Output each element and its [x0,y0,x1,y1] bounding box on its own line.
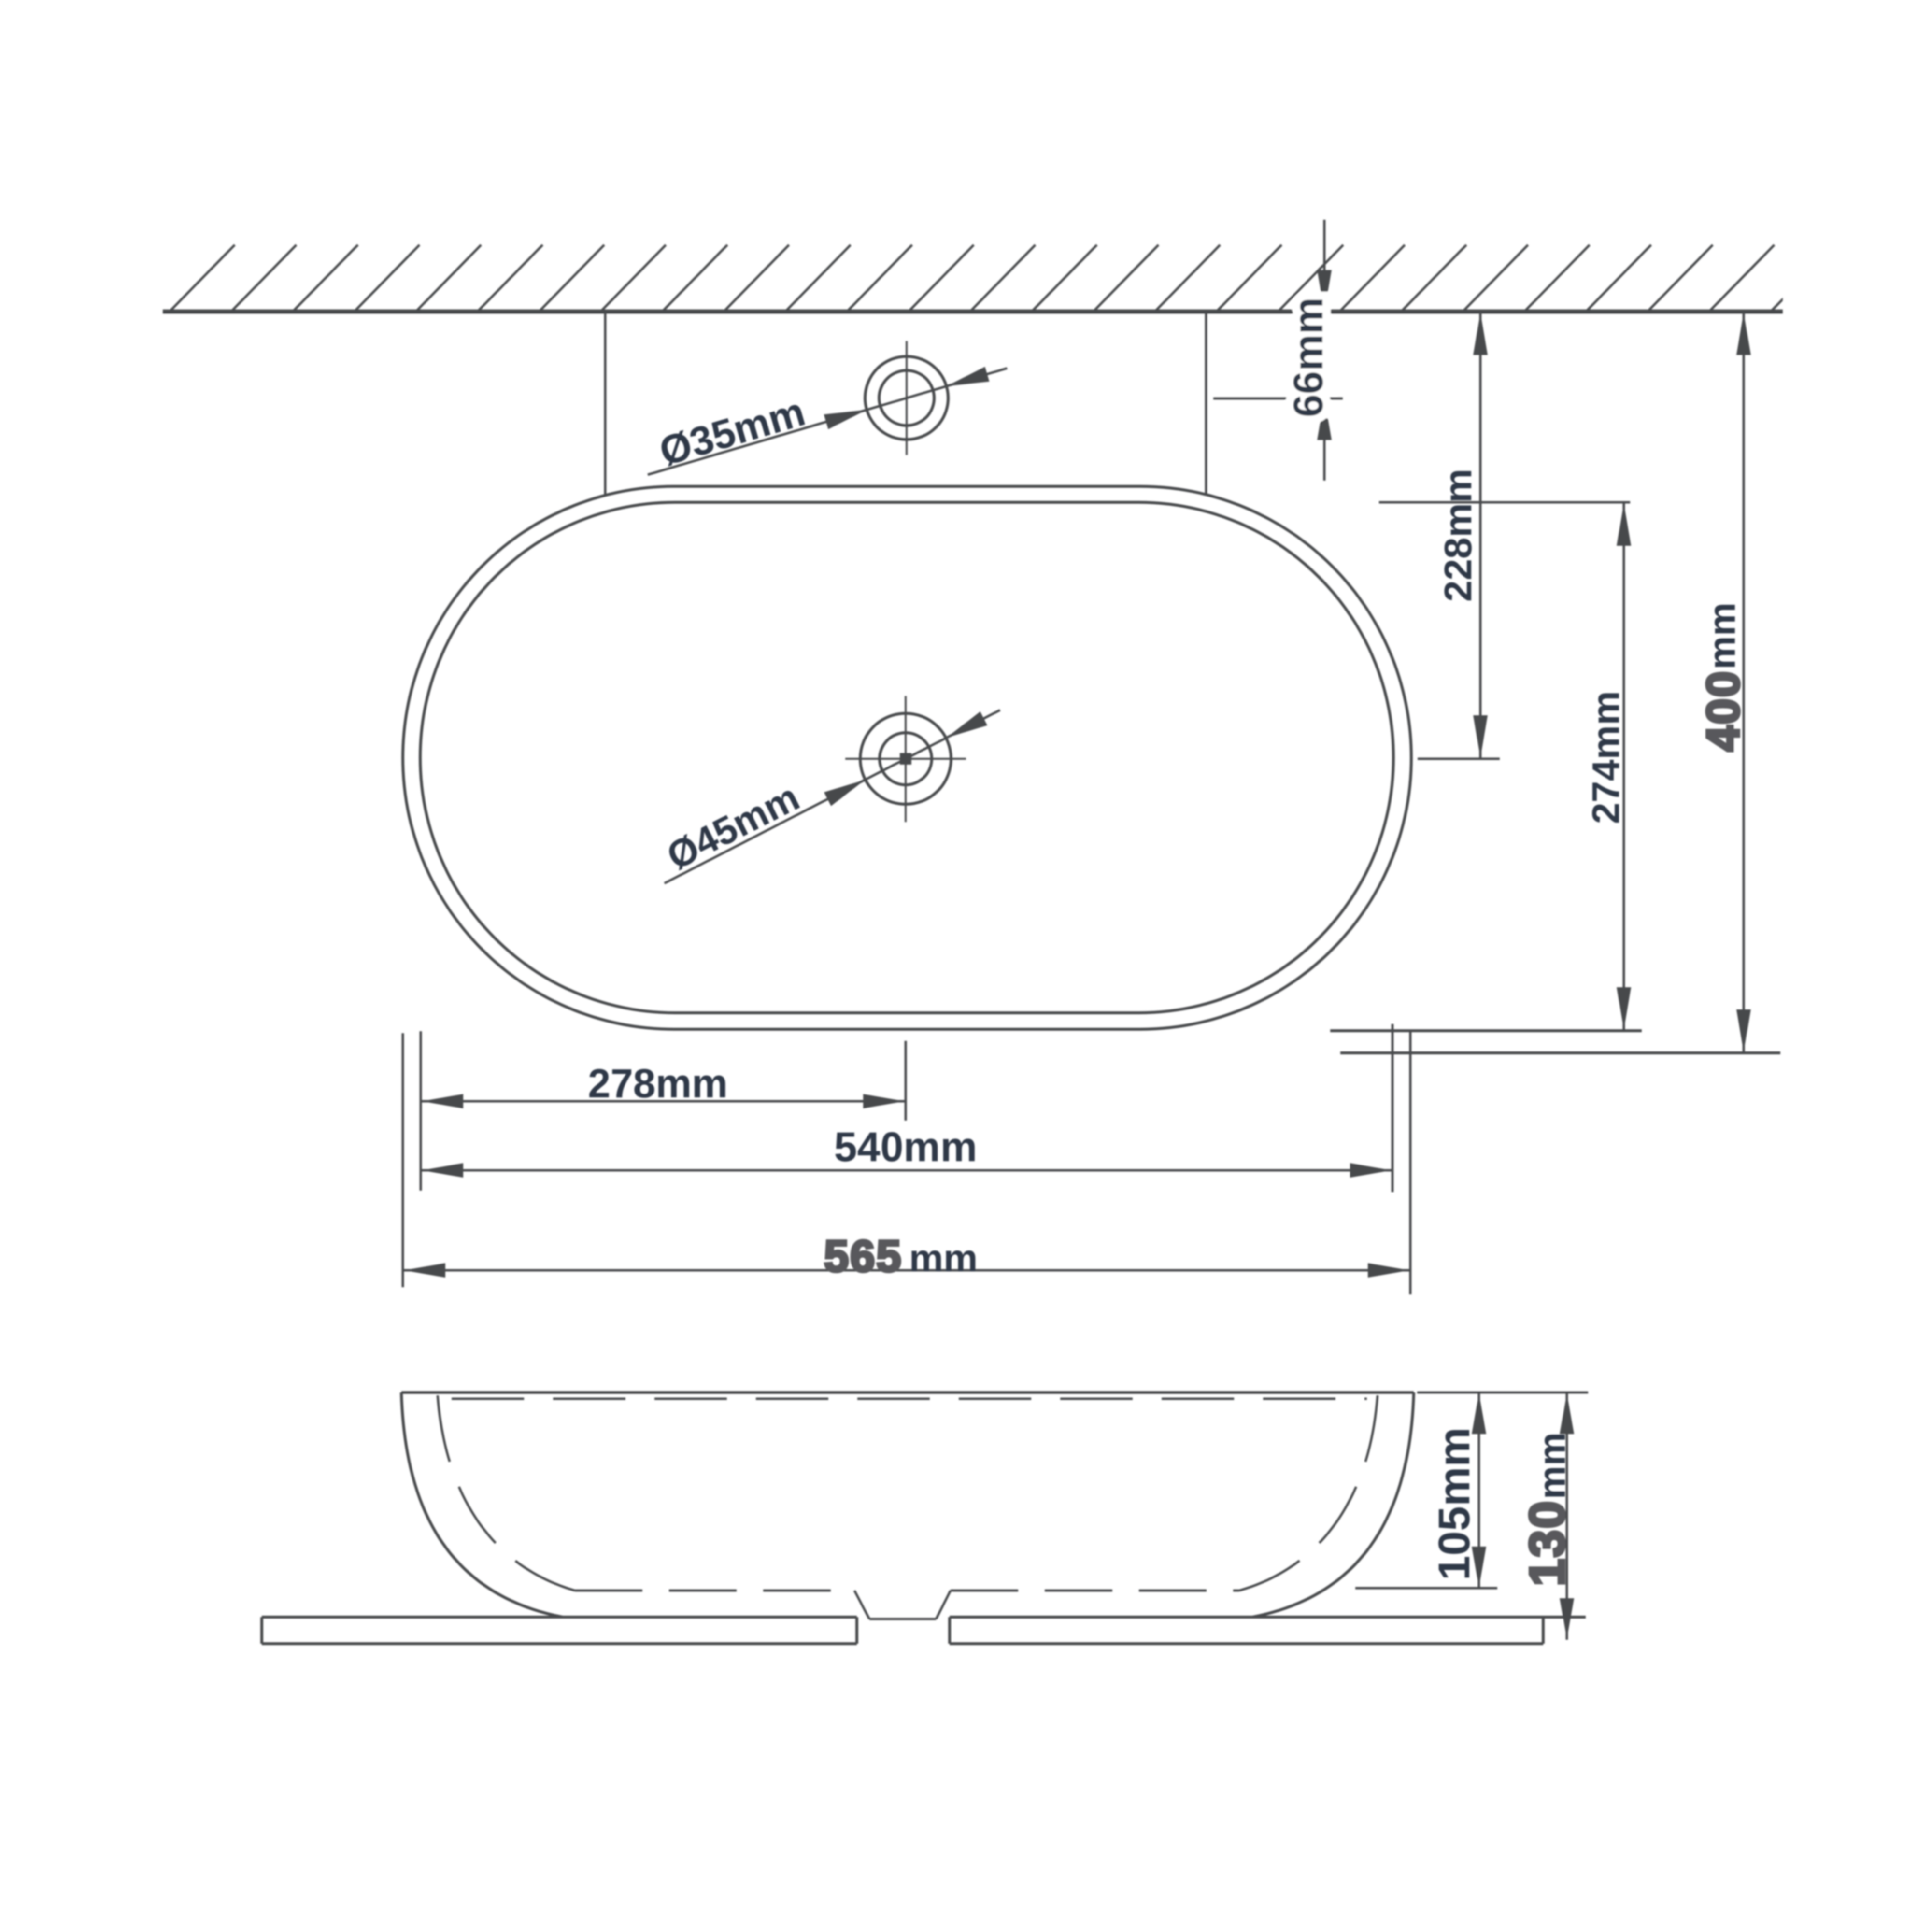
svg-text:mm: mm [1701,602,1743,669]
svg-text:130: 130 [1520,1500,1575,1586]
svg-text:400: 400 [1697,670,1749,752]
svg-text:540mm: 540mm [834,1124,977,1170]
svg-text:mm: mm [909,1236,978,1279]
svg-text:228mm: 228mm [1436,469,1479,602]
svg-text:565: 565 [824,1232,903,1281]
svg-text:278mm: 278mm [588,1061,728,1106]
svg-text:105mm: 105mm [1430,1427,1479,1580]
svg-text:66mm: 66mm [1285,297,1332,417]
svg-text:274mm: 274mm [1584,691,1627,824]
svg-text:mm: mm [1531,1432,1573,1499]
